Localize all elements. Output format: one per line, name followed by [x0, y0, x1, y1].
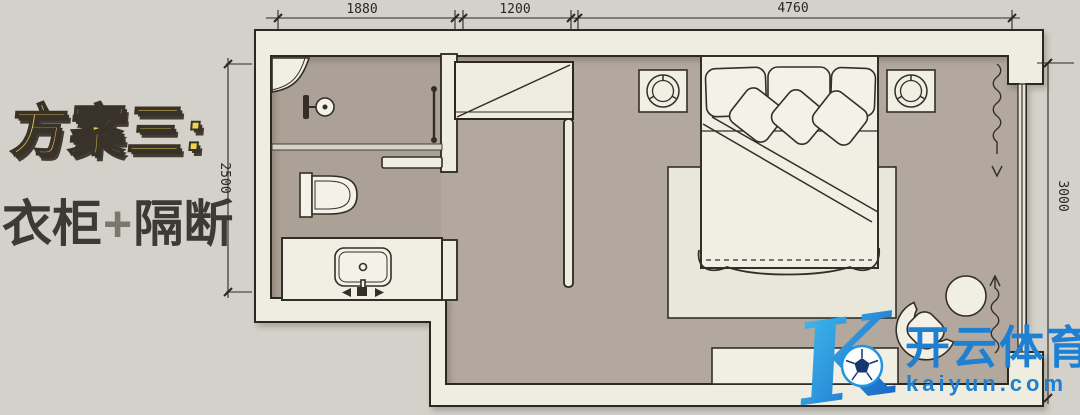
vanity-sink — [282, 238, 442, 300]
plus-sign: + — [103, 196, 132, 252]
ceiling-lamp-left-icon — [639, 70, 687, 112]
wardrobe — [455, 62, 573, 119]
plan-subtitle: 衣柜+隔断 — [2, 184, 233, 256]
dim-top-2: 1200 — [499, 2, 530, 17]
ceiling-lamp-right-icon — [887, 70, 935, 112]
floor-plan-screenshot: 1880 1200 4760 2500 3000 K — [0, 0, 1080, 415]
soccer-ball-icon — [842, 346, 882, 386]
double-bed — [699, 56, 880, 275]
subtitle-suffix: 隔断 — [133, 196, 233, 252]
side-table — [946, 276, 986, 316]
dim-top-3: 4760 — [777, 1, 808, 16]
watermark-brand: 开云体育 — [905, 322, 1080, 373]
dim-top-1: 1880 — [346, 2, 377, 17]
plan-title: 方案三: — [8, 86, 210, 167]
glass-partition — [272, 144, 442, 150]
dim-right: 3000 — [1055, 180, 1070, 211]
partition-wall — [564, 119, 573, 287]
subtitle-prefix: 衣柜 — [2, 196, 102, 252]
toilet-icon — [300, 173, 357, 217]
bathroom-wall-lower — [441, 240, 457, 300]
window — [1018, 84, 1026, 352]
watermark-domain: kaiyun.com — [906, 371, 1067, 396]
wall-shelf — [382, 157, 442, 168]
